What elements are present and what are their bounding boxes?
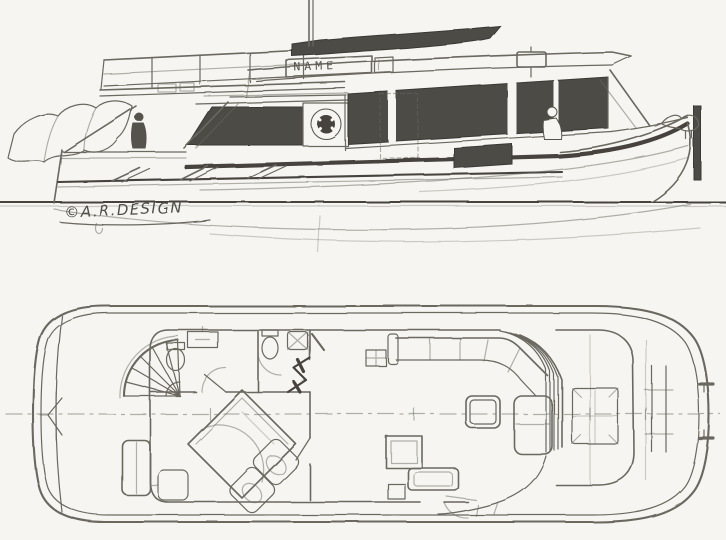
- boat-name-text: NAME: [294, 58, 338, 74]
- boat-design-sketch: NAME: [0, 0, 726, 540]
- engine-vent: [454, 144, 512, 168]
- boat-design-drawing: NAME: [0, 0, 726, 540]
